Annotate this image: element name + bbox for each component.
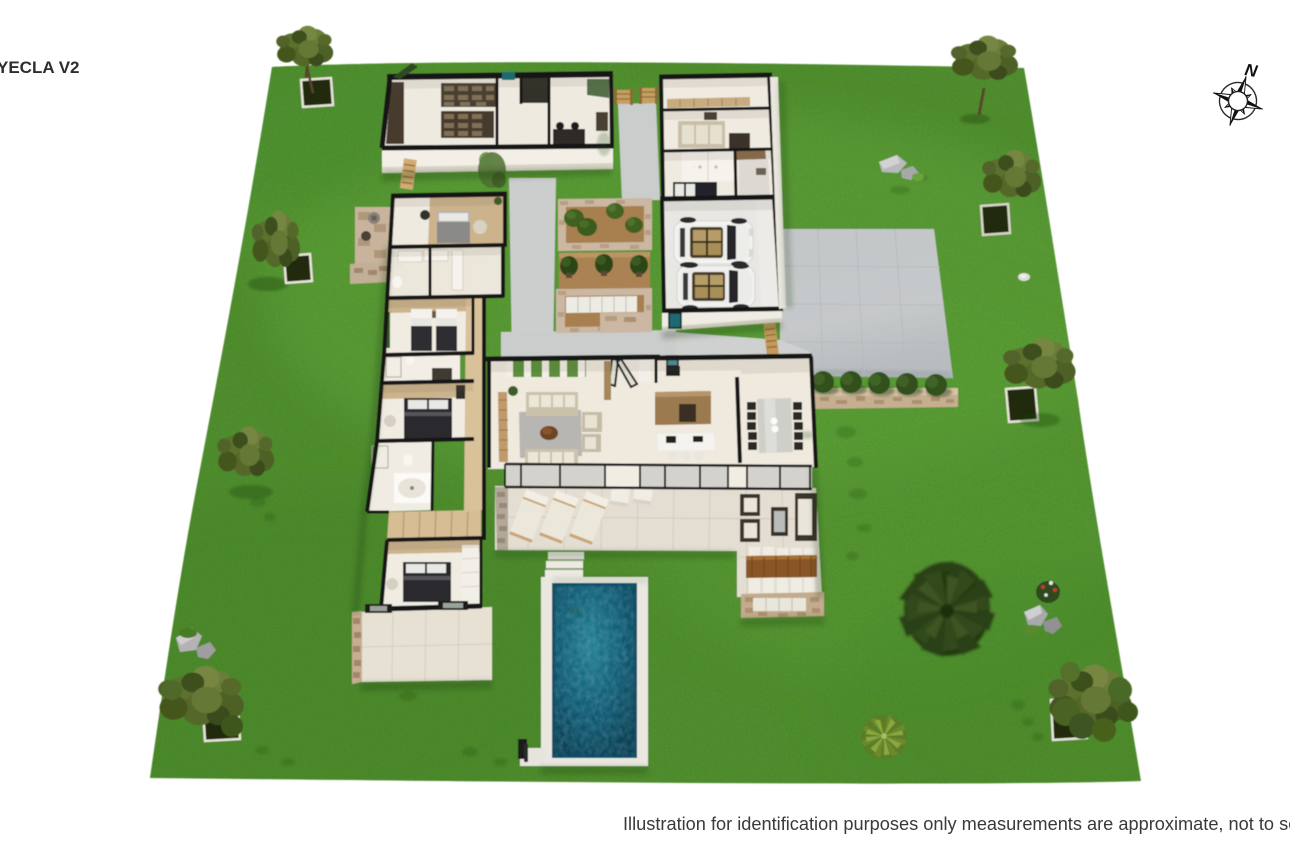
svg-text:YECLA V2: YECLA V2 (0, 58, 80, 77)
svg-text:Illustration for identificatio: Illustration for identification purposes… (623, 814, 1290, 834)
